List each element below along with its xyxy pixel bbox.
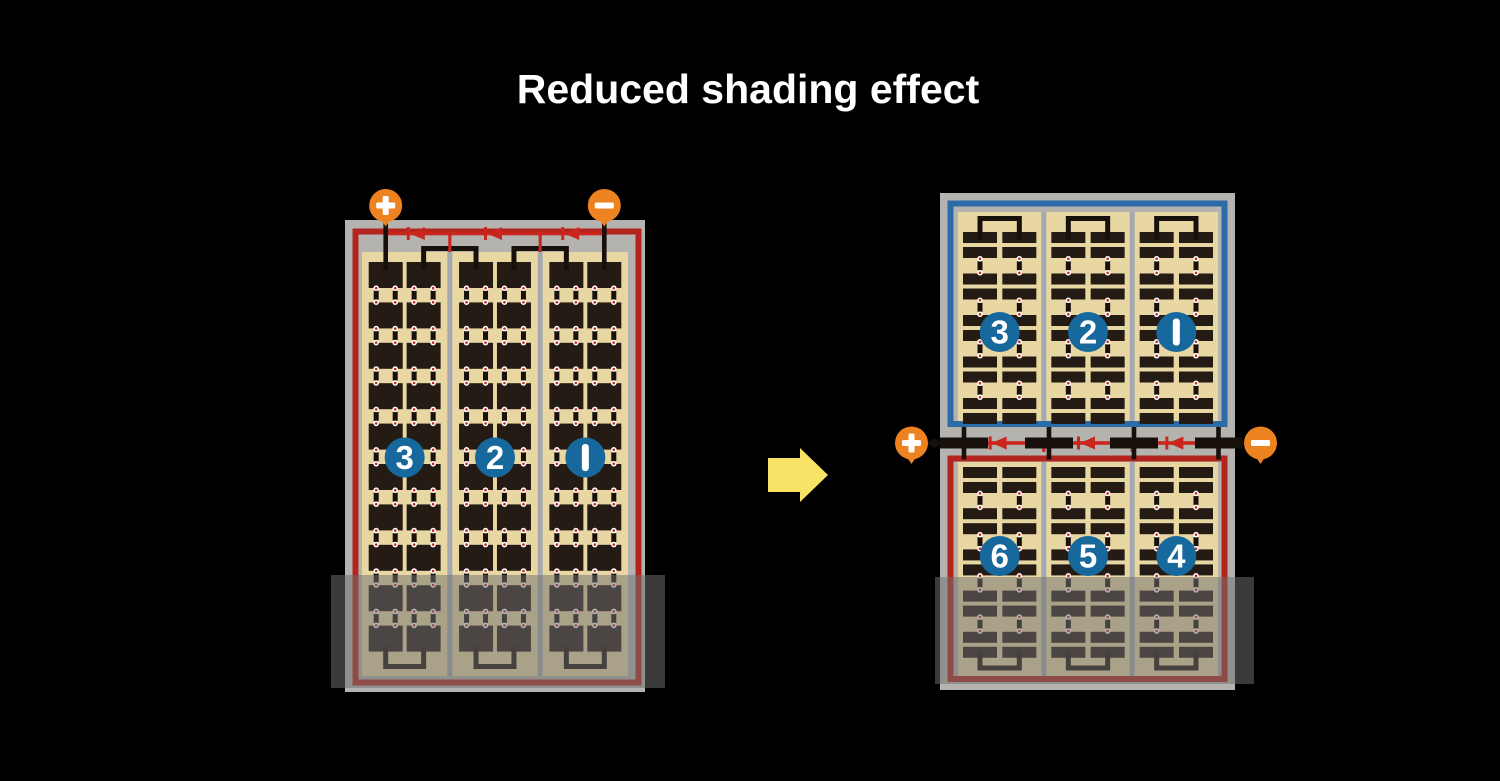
- left-panel-full-cell-module: 32: [331, 189, 665, 692]
- cell-connector: [1154, 491, 1160, 511]
- half-cut-cell: [1179, 413, 1213, 424]
- half-cut-cell: [1051, 467, 1085, 478]
- junction-stub: [1216, 427, 1221, 460]
- cell-connector: [1017, 380, 1023, 400]
- cell-connector: [464, 285, 470, 305]
- cell-connector: [464, 528, 470, 548]
- half-cut-cell: [963, 467, 997, 478]
- solar-cell: [369, 302, 403, 328]
- cell-connector: [554, 326, 560, 346]
- cell-connector: [1193, 297, 1199, 317]
- cell-connector: [373, 407, 379, 427]
- cell-connector: [373, 487, 379, 507]
- half-cut-cell: [1140, 413, 1174, 424]
- string-badge-number: [582, 444, 589, 471]
- cell-connector: [521, 487, 527, 507]
- cell-connector: [611, 407, 617, 427]
- solar-cell: [407, 545, 441, 571]
- cell-connector: [1017, 491, 1023, 511]
- cell-connector: [1017, 297, 1023, 317]
- cell-connector: [592, 366, 598, 386]
- solar-cell: [369, 504, 403, 530]
- cell-connector: [554, 487, 560, 507]
- cell-connector: [502, 285, 508, 305]
- cell-connector: [411, 366, 417, 386]
- cell-connector: [464, 326, 470, 346]
- cell-connector: [483, 487, 489, 507]
- cell-connector: [1105, 380, 1111, 400]
- cell-connector: [1154, 380, 1160, 400]
- cell-connector: [573, 285, 579, 305]
- cell-connector: [502, 326, 508, 346]
- cell-connector: [392, 528, 398, 548]
- cell-connector: [1066, 256, 1072, 276]
- string-badge: [565, 438, 605, 478]
- cell-connector: [592, 528, 598, 548]
- half-cut-cell: [963, 413, 997, 424]
- cell-connector: [430, 528, 436, 548]
- cell-connector: [1193, 339, 1199, 359]
- solar-cell: [459, 504, 493, 530]
- string-badge: 3: [385, 438, 425, 478]
- solar-cell: [459, 383, 493, 409]
- page-title: Reduced shading effect: [517, 66, 980, 112]
- solar-cell: [587, 302, 621, 328]
- cell-connector: [977, 297, 983, 317]
- string-badge: 6: [980, 536, 1020, 576]
- string-badge-number: 3: [395, 439, 413, 476]
- right-panel-half-cut-module: 32654: [895, 193, 1277, 690]
- cell-connector: [521, 285, 527, 305]
- cell-connector: [1017, 339, 1023, 359]
- string-badge-number: 3: [990, 314, 1008, 351]
- shading-effect-diagram: Reduced shading effect 32 32654: [0, 0, 1500, 781]
- cell-connector: [554, 285, 560, 305]
- junction-stub: [1047, 427, 1052, 460]
- cell-connector: [502, 366, 508, 386]
- cell-connector: [521, 528, 527, 548]
- cell-connector: [554, 528, 560, 548]
- cell-connector: [977, 256, 983, 276]
- cell-connector: [502, 407, 508, 427]
- cell-connector: [411, 407, 417, 427]
- cell-connector: [373, 366, 379, 386]
- cell-connector: [1105, 339, 1111, 359]
- string-badge: 5: [1068, 536, 1108, 576]
- string-badge: 2: [475, 438, 515, 478]
- diagram-canvas: Reduced shading effect 32 32654: [0, 0, 1500, 781]
- bypass-bus-tap: [539, 234, 542, 253]
- half-cut-cell: [1140, 467, 1174, 478]
- solar-cell: [369, 343, 403, 369]
- solar-cell: [497, 545, 531, 571]
- solar-cell: [407, 504, 441, 530]
- cell-connector: [373, 326, 379, 346]
- solar-cell: [587, 545, 621, 571]
- cell-connector: [521, 447, 527, 467]
- cell-connector: [592, 285, 598, 305]
- solar-cell: [549, 343, 583, 369]
- minus-glyph: [1251, 440, 1270, 446]
- cell-connector: [1193, 491, 1199, 511]
- cell-connector: [573, 528, 579, 548]
- cell-connector: [1154, 297, 1160, 317]
- cell-connector: [430, 447, 436, 467]
- cell-connector: [392, 407, 398, 427]
- cell-connector: [411, 285, 417, 305]
- cell-connector: [502, 487, 508, 507]
- solar-cell: [587, 343, 621, 369]
- cell-connector: [521, 407, 527, 427]
- string-badge-number: 6: [990, 538, 1008, 575]
- half-cut-cell: [1091, 413, 1125, 424]
- cell-connector: [392, 285, 398, 305]
- cell-connector: [1066, 491, 1072, 511]
- cell-connector: [430, 407, 436, 427]
- cell-connector: [611, 528, 617, 548]
- cell-connector: [502, 528, 508, 548]
- cell-connector: [373, 447, 379, 467]
- cell-connector: [521, 326, 527, 346]
- cell-connector: [1066, 380, 1072, 400]
- cell-connector: [1066, 297, 1072, 317]
- solar-cell: [497, 504, 531, 530]
- cell-connector: [1105, 256, 1111, 276]
- cell-connector: [977, 491, 983, 511]
- solar-cell: [407, 383, 441, 409]
- solar-cell: [587, 504, 621, 530]
- half-cut-cell: [1002, 413, 1036, 424]
- terminal-node: [1234, 439, 1243, 448]
- cell-connector: [392, 366, 398, 386]
- cell-connector: [1017, 256, 1023, 276]
- cell-connector: [411, 326, 417, 346]
- cell-connector: [592, 407, 598, 427]
- cell-connector: [611, 366, 617, 386]
- minus-glyph: [595, 203, 614, 209]
- cell-connector: [592, 487, 598, 507]
- cell-connector: [573, 326, 579, 346]
- cell-connector: [411, 487, 417, 507]
- solar-cell: [369, 545, 403, 571]
- string-badge-number: 2: [486, 439, 504, 476]
- half-cut-cell: [1002, 467, 1036, 478]
- solar-cell: [459, 545, 493, 571]
- junction-stub: [1132, 427, 1137, 460]
- half-cut-cell: [1179, 467, 1213, 478]
- cell-connector: [464, 447, 470, 467]
- terminal-stem: [383, 221, 388, 270]
- solar-cell: [407, 302, 441, 328]
- cell-connector: [430, 326, 436, 346]
- cell-connector: [521, 366, 527, 386]
- string-badge-number: [1173, 319, 1180, 346]
- cell-connector: [1193, 380, 1199, 400]
- cell-connector: [392, 326, 398, 346]
- cell-connector: [1105, 491, 1111, 511]
- cell-connector: [483, 366, 489, 386]
- cell-connector: [1066, 339, 1072, 359]
- cell-connector: [1105, 297, 1111, 317]
- half-cut-cell: [1051, 413, 1085, 424]
- cell-connector: [464, 407, 470, 427]
- cell-connector: [1154, 256, 1160, 276]
- cell-connector: [554, 407, 560, 427]
- cell-connector: [483, 285, 489, 305]
- cell-connector: [554, 366, 560, 386]
- solar-cell: [549, 545, 583, 571]
- string-badge: 3: [980, 312, 1020, 352]
- column-separator: [1130, 212, 1135, 425]
- solar-cell: [549, 504, 583, 530]
- cell-connector: [611, 285, 617, 305]
- cell-connector: [483, 528, 489, 548]
- shading-overlay: [935, 577, 1254, 684]
- solar-cell: [549, 383, 583, 409]
- solar-cell: [587, 383, 621, 409]
- string-badge-number: 5: [1079, 538, 1097, 575]
- cell-connector: [977, 339, 983, 359]
- column-separator: [1041, 212, 1046, 425]
- solar-cell: [549, 302, 583, 328]
- cell-connector: [411, 528, 417, 548]
- terminal-node: [930, 439, 939, 448]
- string-badge-number: 4: [1167, 538, 1186, 575]
- cell-connector: [373, 528, 379, 548]
- string-badge: 2: [1068, 312, 1108, 352]
- cell-connector: [573, 487, 579, 507]
- string-badge: 4: [1156, 536, 1196, 576]
- solar-cell: [497, 343, 531, 369]
- terminal-stem: [602, 221, 607, 270]
- string-badge-number: 2: [1079, 314, 1097, 351]
- cell-connector: [611, 326, 617, 346]
- bypass-bus-tap: [448, 234, 451, 253]
- solar-cell: [459, 343, 493, 369]
- solar-cell: [407, 343, 441, 369]
- cell-connector: [977, 380, 983, 400]
- string-badge: [1156, 312, 1196, 352]
- solar-cell: [369, 383, 403, 409]
- shading-overlay: [331, 575, 665, 688]
- cell-connector: [430, 487, 436, 507]
- junction-stub: [962, 427, 967, 460]
- cell-connector: [392, 487, 398, 507]
- cell-connector: [554, 447, 560, 467]
- cell-connector: [573, 366, 579, 386]
- cell-connector: [464, 487, 470, 507]
- solar-cell: [497, 383, 531, 409]
- solar-cell: [459, 302, 493, 328]
- half-cut-cell: [1091, 467, 1125, 478]
- cell-connector: [464, 366, 470, 386]
- cell-connector: [483, 326, 489, 346]
- cell-connector: [373, 285, 379, 305]
- cell-connector: [483, 407, 489, 427]
- solar-cell: [497, 302, 531, 328]
- cell-connector: [611, 487, 617, 507]
- cell-connector: [430, 285, 436, 305]
- cell-connector: [611, 447, 617, 467]
- background: [0, 0, 1500, 781]
- cell-connector: [1193, 256, 1199, 276]
- cell-connector: [1154, 339, 1160, 359]
- cell-connector: [592, 326, 598, 346]
- cell-connector: [430, 366, 436, 386]
- cell-connector: [573, 407, 579, 427]
